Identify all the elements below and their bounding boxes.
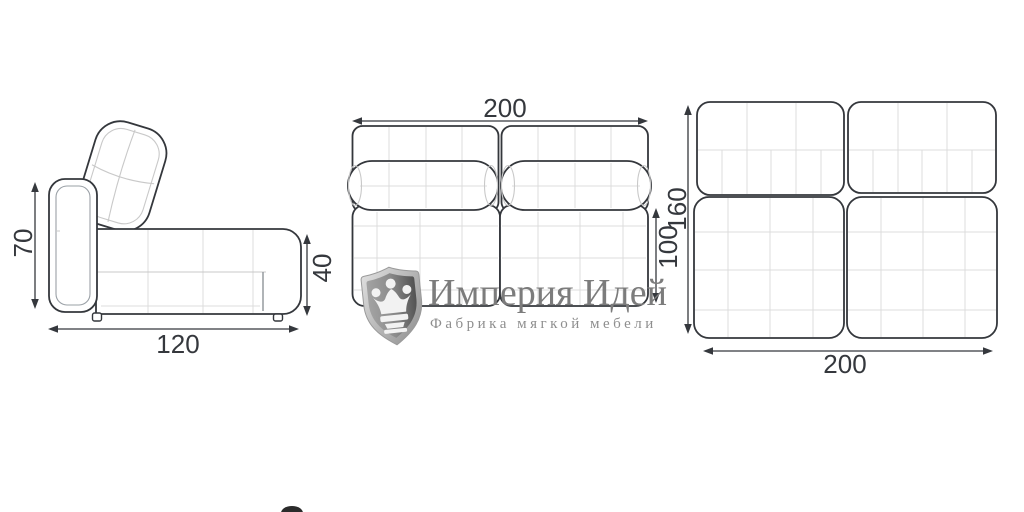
top-view-backrest-panels <box>697 102 996 195</box>
top-width-dimension-label: 200 <box>823 349 866 379</box>
top-depth-dimension-label: 160 <box>662 187 692 230</box>
front-view-base <box>353 205 649 306</box>
furniture-dimension-diagram: 70 120 40 <box>0 0 1024 512</box>
side-length-dimension: 120 <box>48 325 299 359</box>
side-height-dimension: 70 <box>8 182 39 309</box>
front-view: 200 100 <box>348 93 683 306</box>
side-view-armrest <box>49 179 97 312</box>
side-view: 70 120 40 <box>8 115 337 359</box>
front-height-dimension-label: 100 <box>653 225 683 268</box>
front-width-dimension: 200 <box>352 93 648 125</box>
side-length-dimension-label: 120 <box>156 329 199 359</box>
side-view-seat <box>93 229 302 321</box>
sofa-drawings-canvas: 70 120 40 <box>0 0 1024 512</box>
top-width-dimension: 200 <box>703 347 993 379</box>
top-depth-dimension: 160 <box>662 105 692 334</box>
top-view-seat-panels <box>694 197 997 338</box>
side-seat-height-dimension: 40 <box>303 234 337 316</box>
side-height-dimension-label: 70 <box>8 229 38 258</box>
front-view-bolsters <box>348 161 651 210</box>
front-width-dimension-label: 200 <box>483 93 526 123</box>
top-view: 160 200 <box>662 102 997 379</box>
side-seat-height-dimension-label: 40 <box>307 254 337 283</box>
